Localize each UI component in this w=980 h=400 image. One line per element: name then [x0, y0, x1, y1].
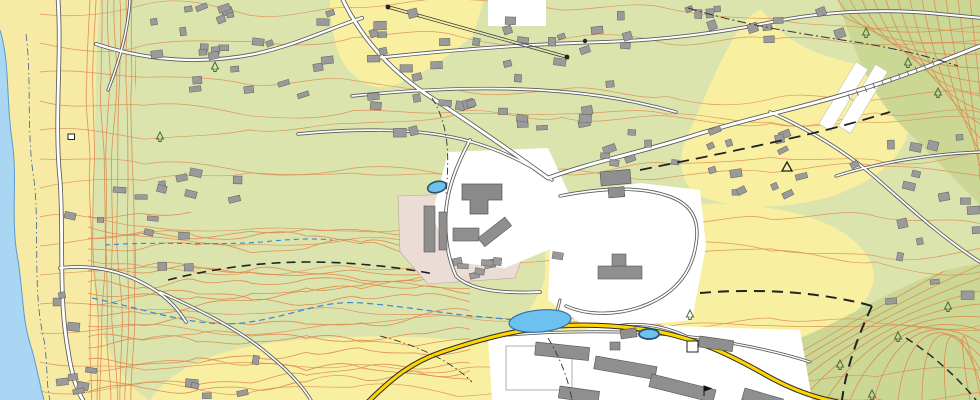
elevation-point-symbol [68, 134, 75, 140]
map-canvas[interactable] [0, 0, 980, 400]
map-viewport[interactable] [0, 0, 980, 400]
parking-icon [687, 341, 698, 352]
